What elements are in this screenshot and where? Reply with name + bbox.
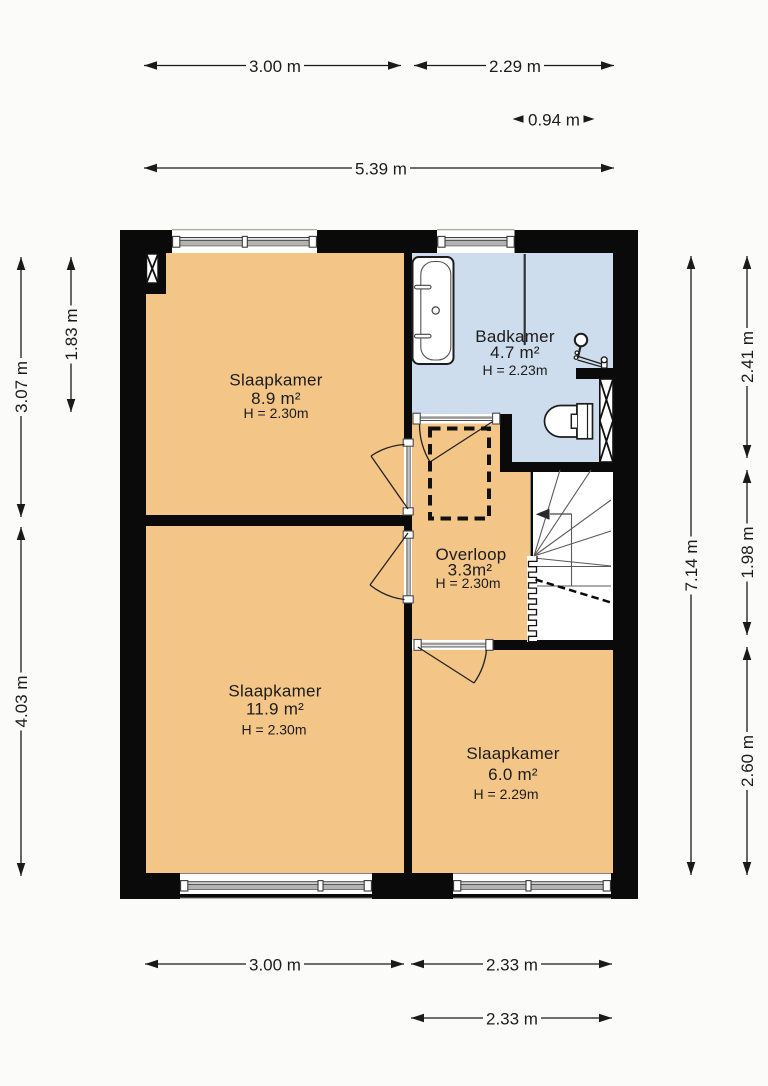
svg-text:5.39 m: 5.39 m — [355, 159, 407, 178]
svg-text:Slaapkamer: Slaapkamer — [228, 682, 321, 701]
svg-text:Slaapkamer: Slaapkamer — [229, 371, 322, 390]
svg-text:3.00 m: 3.00 m — [249, 57, 301, 76]
svg-text:H = 2.23m: H = 2.23m — [483, 362, 548, 378]
svg-text:2.60 m: 2.60 m — [738, 735, 757, 787]
svg-text:4.03 m: 4.03 m — [12, 676, 31, 728]
svg-text:11.9 m²: 11.9 m² — [246, 700, 304, 719]
svg-text:H = 2.29m: H = 2.29m — [474, 786, 539, 802]
svg-text:1.83 m: 1.83 m — [62, 309, 81, 361]
svg-text:4.7 m²: 4.7 m² — [490, 343, 540, 362]
svg-text:H = 2.30m: H = 2.30m — [242, 722, 307, 738]
svg-text:3.00 m: 3.00 m — [249, 955, 301, 974]
svg-text:2.29 m: 2.29 m — [489, 57, 541, 76]
svg-text:H = 2.30m: H = 2.30m — [436, 575, 501, 591]
svg-text:2.41 m: 2.41 m — [738, 331, 757, 383]
svg-text:7.14 m: 7.14 m — [682, 540, 701, 592]
svg-text:0.94 m: 0.94 m — [528, 110, 580, 129]
svg-text:H = 2.30m: H = 2.30m — [244, 405, 309, 421]
svg-text:6.0 m²: 6.0 m² — [488, 765, 538, 784]
svg-text:Slaapkamer: Slaapkamer — [466, 744, 559, 763]
svg-text:2.33 m: 2.33 m — [486, 1009, 538, 1028]
svg-text:1.98 m: 1.98 m — [738, 527, 757, 579]
svg-text:2.33 m: 2.33 m — [486, 955, 538, 974]
svg-text:3.07 m: 3.07 m — [12, 361, 31, 413]
